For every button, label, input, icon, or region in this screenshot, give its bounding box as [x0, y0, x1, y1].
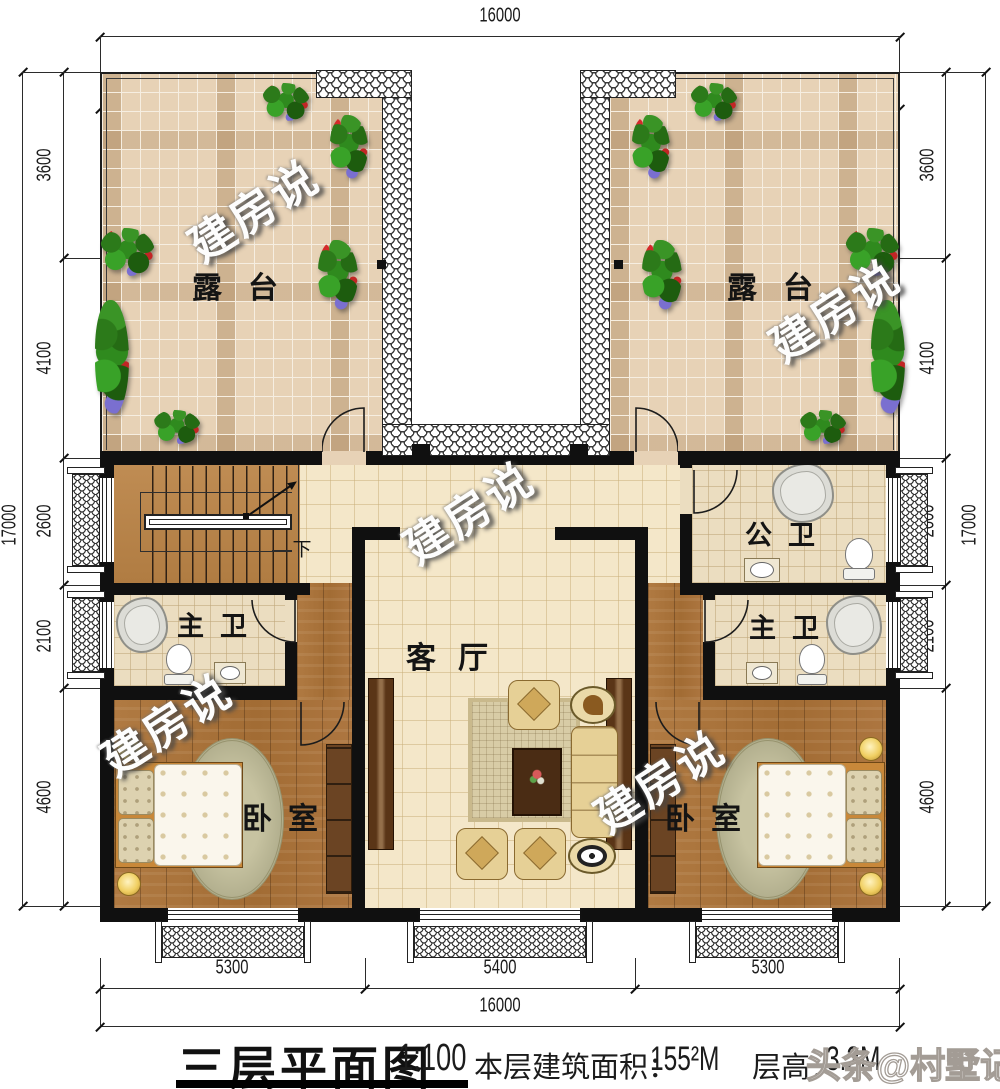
sink [744, 558, 780, 582]
dim-extension [63, 688, 100, 689]
room-label-public-bath: 公卫 [729, 514, 831, 553]
coffee-table [512, 748, 562, 816]
window-bottom-center [418, 908, 582, 922]
parapet-post [377, 260, 386, 269]
room-label-terrace-left: 露台 [166, 263, 304, 307]
plant-icon [262, 83, 310, 121]
dim-bottom-seg: 5400 [484, 957, 517, 980]
tv-cabinet [368, 678, 394, 850]
opening-terrace-left [322, 451, 366, 465]
pillow [846, 818, 882, 863]
plant-icon [153, 410, 201, 444]
plant-icon [100, 228, 155, 276]
dim-extension [900, 585, 945, 586]
plant-icon [318, 240, 358, 310]
title-underline [176, 1080, 468, 1088]
wall-living-left [352, 540, 365, 908]
dim-extension [63, 458, 100, 459]
door-bedroom-left [299, 700, 345, 746]
dim-line [100, 1026, 900, 1027]
area-value: 155²M [650, 1040, 719, 1079]
bedside-lamp [859, 737, 883, 761]
side-table [570, 686, 616, 724]
railing-left-lower [72, 598, 100, 672]
bed-quilt [758, 764, 846, 866]
roof-tile-cap-right [580, 70, 676, 98]
toilet-tank [797, 674, 827, 685]
bedside-lamp [859, 872, 883, 896]
toilet [799, 644, 825, 674]
dim-extension [900, 688, 945, 689]
dim-line [945, 72, 946, 906]
wall-living-top-right [555, 527, 648, 540]
roof-tile-strip-right [580, 86, 610, 430]
corridor-left-floor [297, 583, 352, 700]
corridor-right-floor [648, 583, 703, 700]
railing-bottom-right [696, 926, 838, 958]
dim-left-seg: 4100 [34, 342, 57, 375]
sink [746, 662, 778, 684]
roof-tile-strip-left [382, 86, 412, 430]
plant-icon [642, 240, 682, 310]
dim-extension [899, 988, 900, 1026]
plant-icon [799, 410, 847, 444]
dim-extension [22, 72, 100, 73]
plant-icon [690, 83, 738, 121]
room-label-bedroom-left: 卧室 [226, 794, 334, 838]
railing-right-lower [900, 598, 928, 672]
dim-extension [900, 458, 945, 459]
area-label: 本层建筑面积： [474, 1044, 677, 1086]
dim-extension [900, 72, 985, 73]
window-left-upper [100, 476, 114, 564]
dim-extension [63, 258, 100, 259]
door-terrace-left [322, 406, 366, 453]
dim-extension [900, 906, 985, 907]
railing-bottom-left [162, 926, 304, 958]
dim-extension [899, 958, 900, 990]
dim-extension [22, 906, 100, 907]
stair-handrail [144, 514, 292, 530]
floor-plan: 16000 4200 7600 4200 5300 5400 5300 1600… [0, 0, 1000, 1089]
dim-line [100, 988, 900, 989]
roof-tile-cap-left [316, 70, 412, 98]
wall-bedroom-right-top [703, 686, 886, 700]
wall-stub [412, 444, 430, 457]
window-right-upper [886, 476, 900, 564]
stair-line [140, 492, 292, 493]
dim-left-seg: 2600 [34, 505, 57, 538]
door-public-bath [692, 468, 738, 514]
pillow [846, 770, 882, 815]
dim-right-seg: 4600 [917, 781, 940, 814]
window-bottom-left [166, 908, 300, 922]
door-terrace-right [634, 406, 678, 453]
courtyard-void [412, 58, 580, 426]
dim-line [22, 72, 23, 906]
dim-bottom-total: 16000 [479, 995, 520, 1018]
toilet [845, 538, 873, 570]
stair-down-label: 下 [292, 535, 311, 562]
window-right-lower [886, 600, 900, 670]
dim-extension [100, 36, 101, 72]
dim-right-seg: 3600 [917, 149, 940, 182]
wall-stub [570, 444, 588, 457]
plant-icon [632, 115, 670, 179]
bedside-lamp [117, 872, 141, 896]
side-table [568, 838, 616, 874]
room-label-master-bath-right: 主卫 [733, 607, 835, 646]
drawing-scale: 1:100 [398, 1037, 466, 1080]
dim-left-seg: 4600 [34, 781, 57, 814]
stair-line [140, 492, 141, 552]
parapet-post [614, 260, 623, 269]
room-label-master-bath-left: 主卫 [161, 605, 263, 644]
stair-arrow-start [243, 513, 249, 519]
dim-line [63, 72, 64, 906]
window-left-lower [100, 600, 114, 670]
window-bottom-right [700, 908, 834, 922]
toilet-tank [843, 568, 875, 580]
dim-top-total: 16000 [479, 5, 520, 28]
dim-bottom-seg: 5300 [216, 957, 249, 980]
watermark-footer: 头条@村墅记 [806, 1038, 1000, 1089]
plant-icon [95, 300, 129, 415]
stair-down-line [272, 550, 292, 552]
dim-right-seg: 4100 [917, 342, 940, 375]
wall-hall-bottom-left [114, 583, 310, 595]
dim-bottom-seg: 5300 [752, 957, 785, 980]
dim-left-seg: 2100 [34, 620, 57, 653]
dim-extension [63, 585, 100, 586]
pillow [118, 818, 154, 863]
plant-icon [330, 115, 368, 179]
railing-right-upper [900, 474, 928, 566]
stair-line [140, 551, 292, 552]
room-label-living: 客厅 [384, 633, 510, 677]
wall-living-right [635, 540, 648, 908]
dim-extension [899, 36, 900, 72]
dim-right-total: 17000 [959, 504, 982, 545]
dim-left-total: 17000 [0, 504, 22, 545]
dim-line [985, 72, 986, 906]
opening-terrace-right [634, 451, 678, 465]
opening-public-bath [680, 468, 692, 514]
dim-extension [900, 258, 945, 259]
dim-left-seg: 3600 [34, 149, 57, 182]
railing-left-upper [72, 474, 100, 566]
dim-line [100, 36, 900, 37]
dim-extension [100, 988, 101, 1026]
railing-bottom-center [414, 926, 586, 958]
